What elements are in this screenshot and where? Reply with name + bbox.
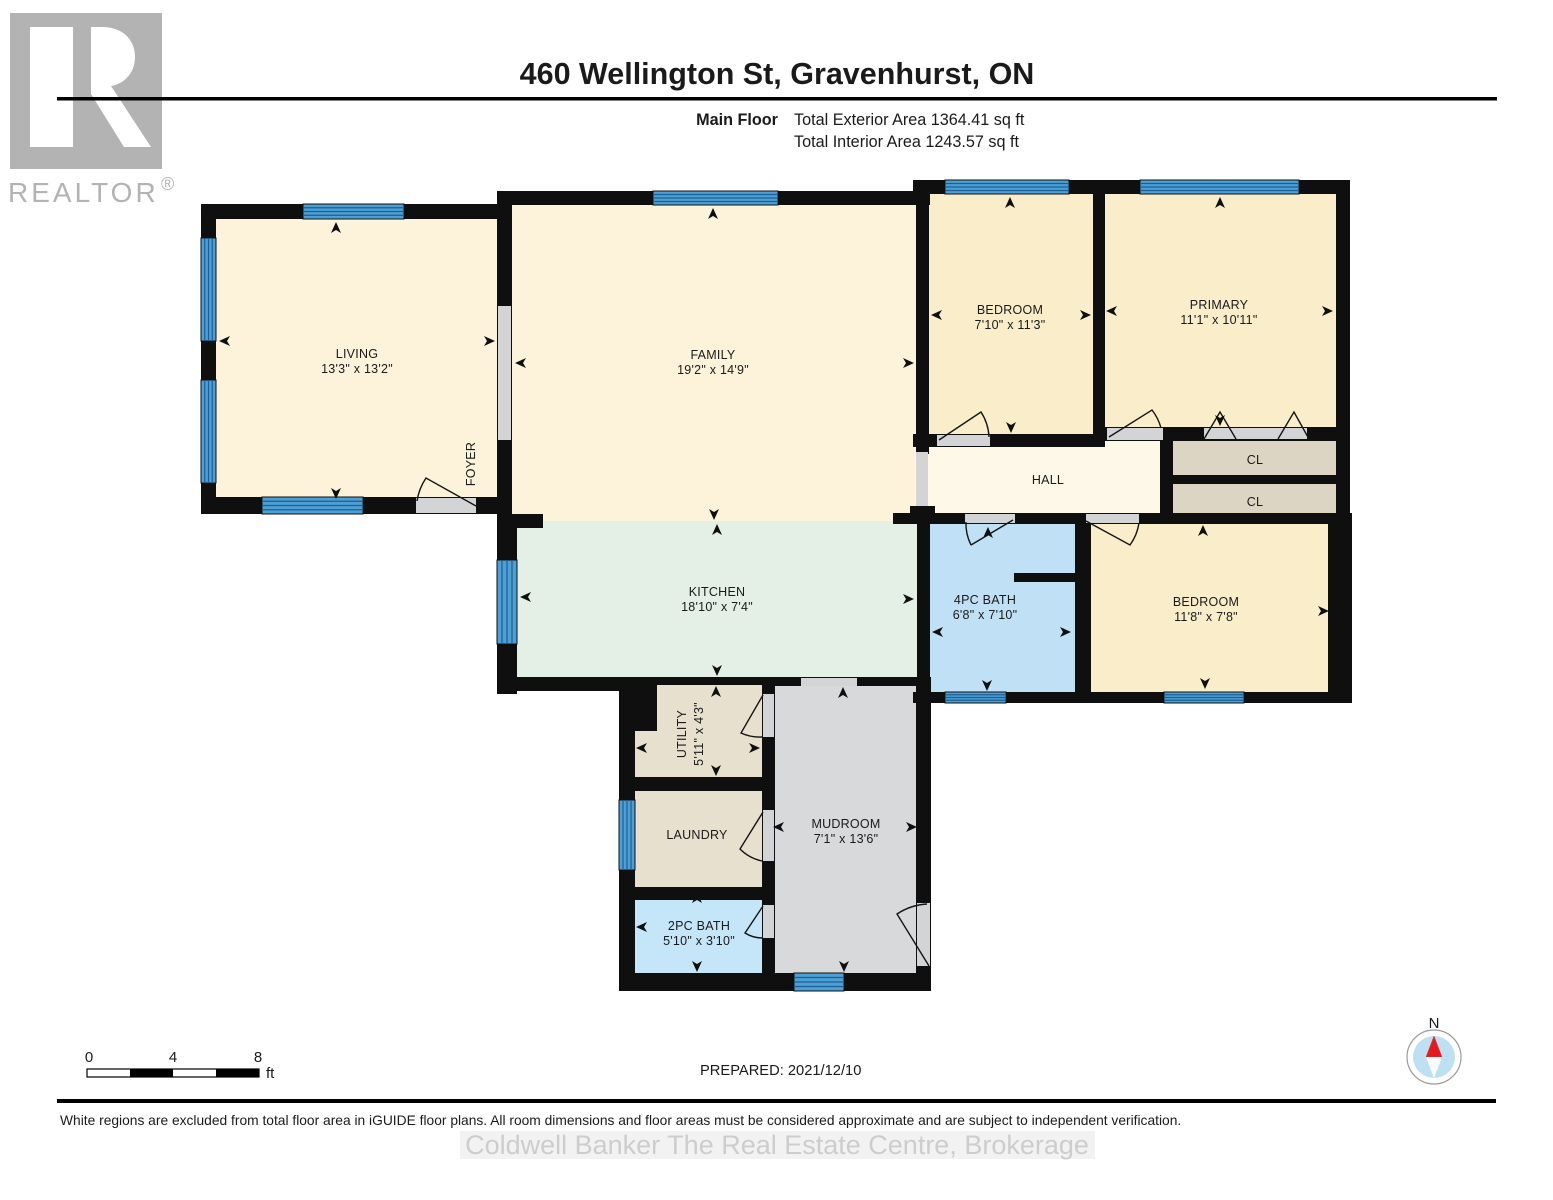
svg-text:7'1" x 13'6": 7'1" x 13'6": [814, 832, 879, 846]
svg-text:5'11" x 4'3": 5'11" x 4'3": [692, 702, 706, 766]
svg-text:7'10" x 11'3": 7'10" x 11'3": [975, 318, 1046, 332]
svg-text:FOYER: FOYER: [464, 442, 478, 486]
svg-text:19'2" x 14'9": 19'2" x 14'9": [677, 363, 749, 377]
svg-text:UTILITY: UTILITY: [675, 709, 689, 758]
svg-text:®: ®: [161, 174, 174, 194]
svg-text:460 Wellington St, Gravenhurst: 460 Wellington St, Gravenhurst, ON: [520, 57, 1035, 91]
svg-text:PRIMARY: PRIMARY: [1190, 298, 1249, 312]
svg-text:5'10" x 3'10": 5'10" x 3'10": [663, 934, 735, 948]
svg-text:Total Interior Area 1243.57 sq: Total Interior Area 1243.57 sq ft: [794, 133, 1019, 151]
svg-text:Total Exterior Area 1364.41 sq: Total Exterior Area 1364.41 sq ft: [794, 111, 1025, 129]
svg-text:BEDROOM: BEDROOM: [977, 303, 1043, 317]
svg-text:KITCHEN: KITCHEN: [689, 585, 746, 599]
svg-text:FAMILY: FAMILY: [690, 348, 735, 362]
svg-text:2PC BATH: 2PC BATH: [668, 919, 730, 933]
svg-text:LIVING: LIVING: [336, 347, 379, 361]
svg-text:CL: CL: [1247, 495, 1263, 509]
svg-text:BEDROOM: BEDROOM: [1173, 595, 1239, 609]
svg-text:White regions are excluded fro: White regions are excluded from total fl…: [60, 1113, 1181, 1128]
svg-text:11'8" x 7'8": 11'8" x 7'8": [1174, 610, 1238, 624]
svg-text:LAUNDRY: LAUNDRY: [666, 828, 728, 842]
svg-text:4PC BATH: 4PC BATH: [954, 593, 1016, 607]
svg-text:4: 4: [169, 1049, 177, 1066]
svg-text:HALL: HALL: [1032, 473, 1064, 487]
svg-text:Main Floor: Main Floor: [696, 111, 779, 129]
svg-text:11'1" x 10'11": 11'1" x 10'11": [1180, 313, 1257, 327]
svg-text:N: N: [1429, 1015, 1440, 1032]
svg-text:ft: ft: [266, 1065, 275, 1082]
svg-text:6'8" x 7'10": 6'8" x 7'10": [953, 608, 1018, 622]
svg-text:CL: CL: [1247, 453, 1263, 467]
svg-text:PREPARED: 2021/12/10: PREPARED: 2021/12/10: [700, 1063, 861, 1079]
svg-text:MUDROOM: MUDROOM: [811, 817, 880, 831]
svg-text:REALTOR: REALTOR: [8, 177, 159, 208]
svg-text:Coldwell Banker The Real Estat: Coldwell Banker The Real Estate Centre, …: [465, 1130, 1089, 1160]
svg-text:0: 0: [85, 1049, 93, 1066]
svg-text:8: 8: [254, 1049, 262, 1066]
svg-text:13'3" x 13'2": 13'3" x 13'2": [321, 362, 393, 376]
svg-text:18'10" x 7'4": 18'10" x 7'4": [681, 600, 753, 614]
